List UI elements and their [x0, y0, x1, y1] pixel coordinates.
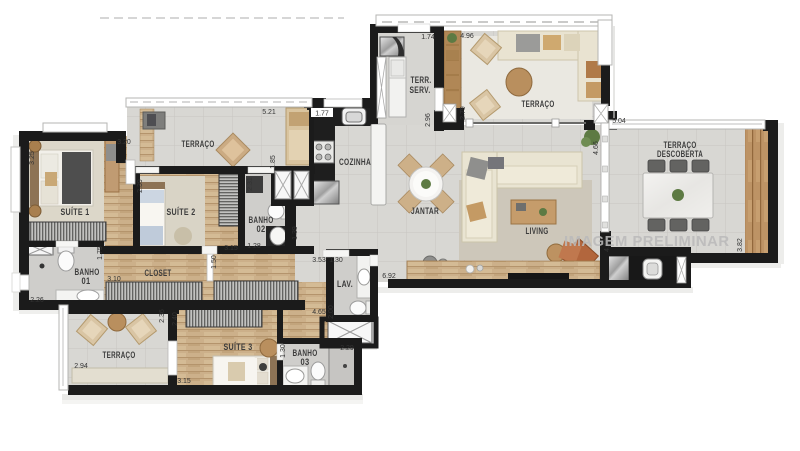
svg-text:2.39: 2.39 — [137, 179, 144, 193]
svg-text:SERV.: SERV. — [410, 85, 431, 95]
svg-text:COZINHA: COZINHA — [339, 157, 371, 167]
svg-text:1.74: 1.74 — [421, 34, 435, 41]
svg-text:1.30: 1.30 — [280, 344, 287, 358]
svg-text:02: 02 — [257, 224, 266, 234]
svg-text:2.36: 2.36 — [159, 309, 166, 323]
svg-text:CLOSET: CLOSET — [145, 268, 172, 278]
svg-text:5.04: 5.04 — [612, 118, 626, 125]
svg-text:1.75: 1.75 — [97, 246, 104, 260]
svg-text:3.15: 3.15 — [224, 245, 238, 252]
svg-text:01: 01 — [82, 276, 91, 286]
svg-text:3.20: 3.20 — [117, 139, 131, 146]
svg-text:5.21: 5.21 — [262, 109, 276, 116]
svg-text:TERR.: TERR. — [411, 75, 432, 85]
svg-text:1.77: 1.77 — [315, 111, 329, 118]
svg-text:LIVING: LIVING — [526, 226, 549, 236]
svg-text:3.53: 3.53 — [312, 257, 326, 264]
svg-text:4.66: 4.66 — [593, 141, 600, 155]
svg-text:4.65: 4.65 — [312, 309, 326, 316]
svg-text:LAV.: LAV. — [337, 279, 353, 289]
svg-text:2.40: 2.40 — [172, 312, 179, 326]
svg-text:2.96: 2.96 — [425, 113, 432, 127]
svg-text:1.50: 1.50 — [211, 255, 218, 269]
svg-text:3.15: 3.15 — [177, 378, 191, 385]
svg-text:3.10: 3.10 — [107, 276, 121, 283]
svg-text:1.39: 1.39 — [292, 226, 299, 240]
svg-text:2.79: 2.79 — [460, 106, 467, 120]
svg-text:4.96: 4.96 — [460, 33, 474, 40]
svg-text:3.82: 3.82 — [737, 238, 744, 252]
svg-text:SUÍTE 3: SUÍTE 3 — [224, 342, 253, 352]
svg-text:TERRAÇO: TERRAÇO — [182, 139, 215, 149]
svg-text:2.00: 2.00 — [328, 305, 335, 319]
svg-text:JANTAR: JANTAR — [411, 206, 439, 216]
svg-text:SUÍTE 1: SUÍTE 1 — [61, 207, 90, 217]
svg-text:TERRAÇO: TERRAÇO — [103, 350, 136, 360]
svg-text:3.25: 3.25 — [29, 151, 36, 165]
svg-text:IMAGEM PRELIMINAR: IMAGEM PRELIMINAR — [564, 234, 730, 250]
svg-text:SUÍTE 2: SUÍTE 2 — [167, 207, 196, 217]
svg-text:2.31: 2.31 — [247, 177, 254, 191]
svg-text:1.30: 1.30 — [329, 257, 343, 264]
svg-text:1.28: 1.28 — [247, 243, 261, 250]
svg-text:TERRAÇO: TERRAÇO — [522, 99, 555, 109]
svg-text:6.92: 6.92 — [382, 273, 396, 280]
svg-text:2.94: 2.94 — [74, 363, 88, 370]
svg-text:DESCOBERTA: DESCOBERTA — [657, 149, 703, 159]
svg-text:2.26: 2.26 — [30, 297, 44, 304]
svg-text:2.29: 2.29 — [340, 345, 354, 352]
svg-text:03: 03 — [301, 357, 310, 367]
svg-text:1.85: 1.85 — [270, 155, 277, 169]
